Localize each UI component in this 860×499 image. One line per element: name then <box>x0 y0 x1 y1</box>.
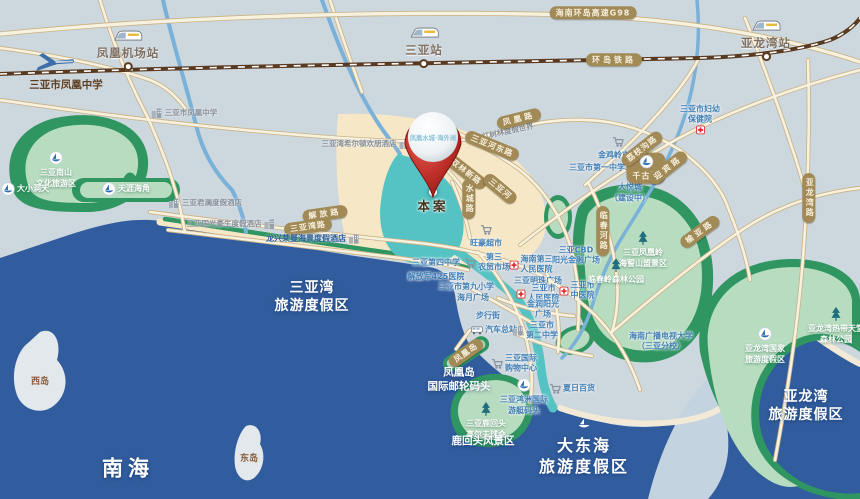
project-pin: 凤凰水城·海外滩 <box>396 99 470 203</box>
pin-project-name: 凤凰水城·海外滩 <box>410 133 457 142</box>
site-label: 本案 <box>417 196 448 215</box>
railway <box>0 18 860 74</box>
sanya-location-map: 凤凰水城·海外滩 本案 海南环岛高速G98环岛铁路凤凰机场站三亚站亚龙湾站三亚市… <box>0 0 860 499</box>
map-base <box>0 0 860 499</box>
